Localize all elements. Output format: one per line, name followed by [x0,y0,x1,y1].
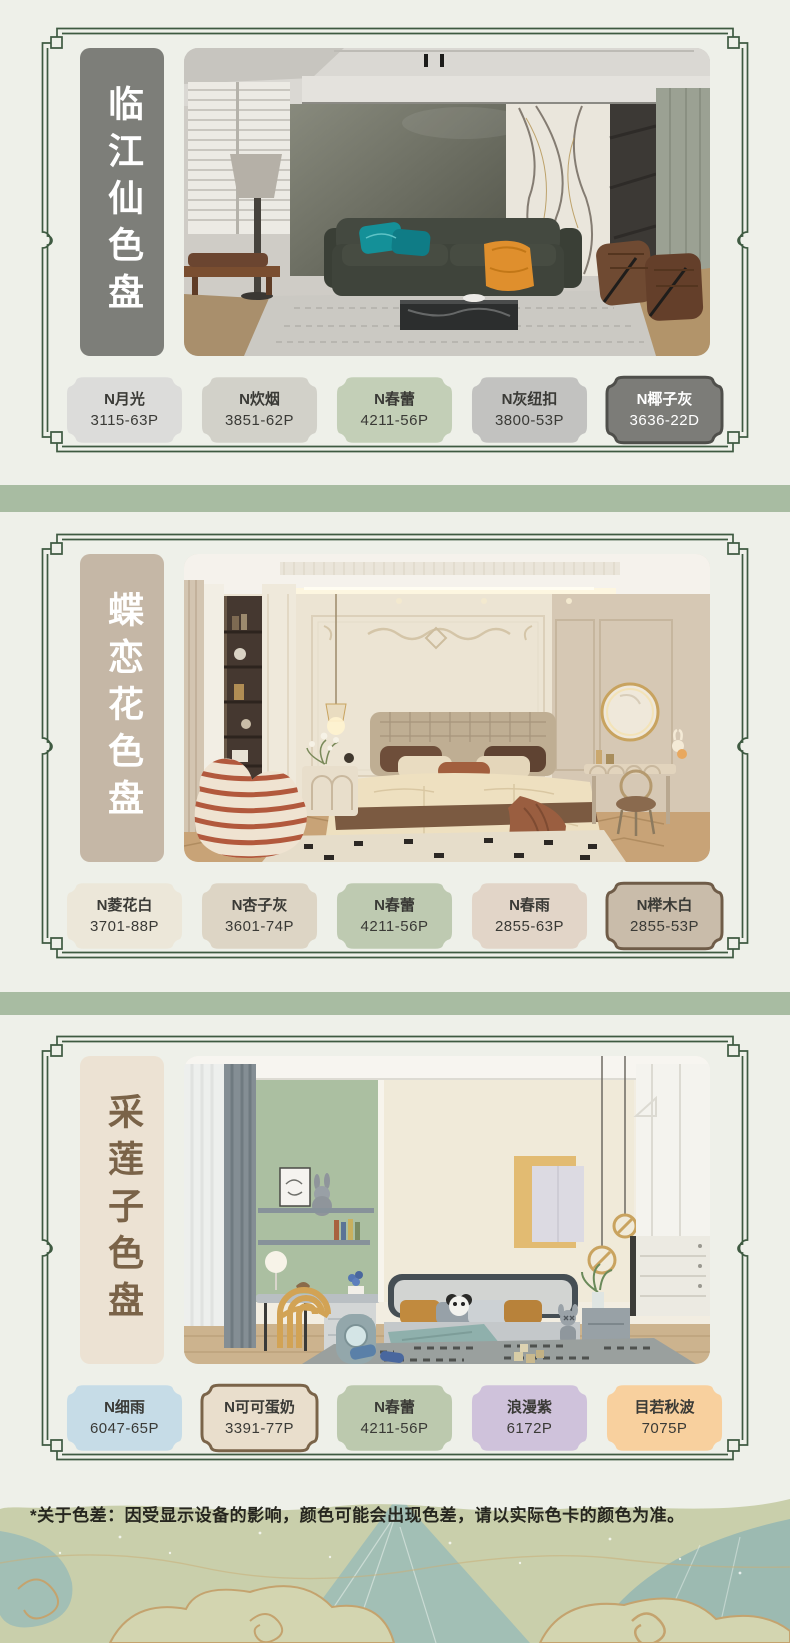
swatch-name: N春蕾 [374,896,415,916]
swatch-row: N细雨 6047-65P N可可蛋奶 3391-77P N春蕾 4211-5 [64,1382,725,1456]
color-swatch-highlighted: N椰子灰 3636-22D [604,374,725,446]
color-swatch-highlighted: N榉木白 2855-53P [604,880,725,952]
swatch-code: 3636-22D [630,411,700,431]
color-swatch: N灰纽扣 3800-53P [469,374,590,446]
swatch-code: 3800-53P [495,411,564,431]
wardrobe [630,1064,710,1316]
swatch-row: N月光 3115-63P N炊烟 3851-62P N春蕾 4211-56P [64,374,725,448]
swatch-name: N杏子灰 [232,896,288,916]
living-room-photo [184,48,710,356]
swatch-name: N灰纽扣 [502,390,558,410]
palette-card-linjiangxian: 临江仙色盘 [36,22,754,458]
wall-art [514,1156,584,1248]
swatch-code: 3601-74P [225,917,294,937]
color-swatch: 浪漫紫 6172P [469,1382,590,1454]
section-divider-band [0,992,790,1015]
color-swatch: N菱花白 3701-88P [64,880,185,952]
palette-title-block: 采莲子色盘 [80,1056,164,1364]
palette-title: 采莲子色盘 [104,1093,140,1328]
swatch-row: N菱花白 3701-88P N杏子灰 3601-74P N春蕾 4211-5 [64,880,725,954]
swatch-name: N春蕾 [374,390,415,410]
kids-room-photo [184,1056,710,1364]
swatch-name: N椰子灰 [637,390,693,410]
orange-throw [484,241,534,291]
swatch-name: 浪漫紫 [507,1398,552,1418]
swatch-name: N细雨 [104,1398,145,1418]
swatch-code: 3851-62P [225,411,294,431]
swatch-code: 6172P [507,1419,553,1439]
swatch-code: 4211-56P [361,917,429,937]
color-swatch: 目若秋波 7075P [604,1382,725,1454]
color-swatch: N细雨 6047-65P [64,1382,185,1454]
swatch-code: 4211-56P [361,1419,429,1439]
palette-title: 临江仙色盘 [104,85,140,320]
swatch-name: N春蕾 [374,1398,415,1418]
palette-title-block: 蝶恋花色盘 [80,554,164,862]
swatch-name: N月光 [104,390,145,410]
swatch-code: 2855-63P [495,917,564,937]
section-divider-band [0,485,790,512]
palette-title: 蝶恋花色盘 [104,591,140,826]
palette-card-cailianzi: 采莲子色盘 [36,1030,754,1466]
color-palette-poster: 临江仙色盘 [0,0,790,1643]
swatch-name: 目若秋波 [634,1398,694,1418]
swatch-name: N春雨 [509,896,550,916]
swatch-name: N可可蛋奶 [224,1398,295,1418]
swatch-name: N榉木白 [637,896,693,916]
color-swatch: N春雨 2855-63P [469,880,590,952]
color-swatch: N春蕾 4211-56P [334,374,455,446]
color-swatch: N月光 3115-63P [64,374,185,446]
color-swatch: N炊烟 3851-62P [199,374,320,446]
swatch-code: 2855-53P [630,917,699,937]
color-swatch-highlighted: N可可蛋奶 3391-77P [199,1382,320,1454]
palette-title-block: 临江仙色盘 [80,48,164,356]
swatch-name: N菱花白 [97,896,153,916]
section-dielianhua: 蝶恋花色盘 [0,512,790,992]
swatch-name: N炊烟 [239,390,280,410]
swatch-code: 3115-63P [91,411,159,431]
bedroom-photo [184,554,710,862]
swatch-code: 6047-65P [90,1419,159,1439]
ceiling [184,1056,710,1078]
color-swatch: N杏子灰 3601-74P [199,880,320,952]
color-disclaimer: *关于色差：因受显示设备的影响，颜色可能会出现色差，请以实际色卡的颜色为准。 [30,1501,685,1526]
color-swatch: N春蕾 4211-56P [334,1382,455,1454]
swatch-code: 3391-77P [225,1419,294,1439]
color-swatch: N春蕾 4211-56P [334,880,455,952]
sheer-curtain [184,1064,224,1326]
swatch-code: 4211-56P [361,411,429,431]
section-cailianzi: 采莲子色盘 [0,1015,790,1493]
section-linjiangxian: 临江仙色盘 [0,0,790,485]
footer-wave-area: *关于色差：因受显示设备的影响，颜色可能会出现色差，请以实际色卡的颜色为准。 [0,1493,790,1643]
swatch-code: 3701-88P [90,917,159,937]
palette-card-dielianhua: 蝶恋花色盘 [36,528,754,964]
swatch-code: 7075P [642,1419,688,1439]
